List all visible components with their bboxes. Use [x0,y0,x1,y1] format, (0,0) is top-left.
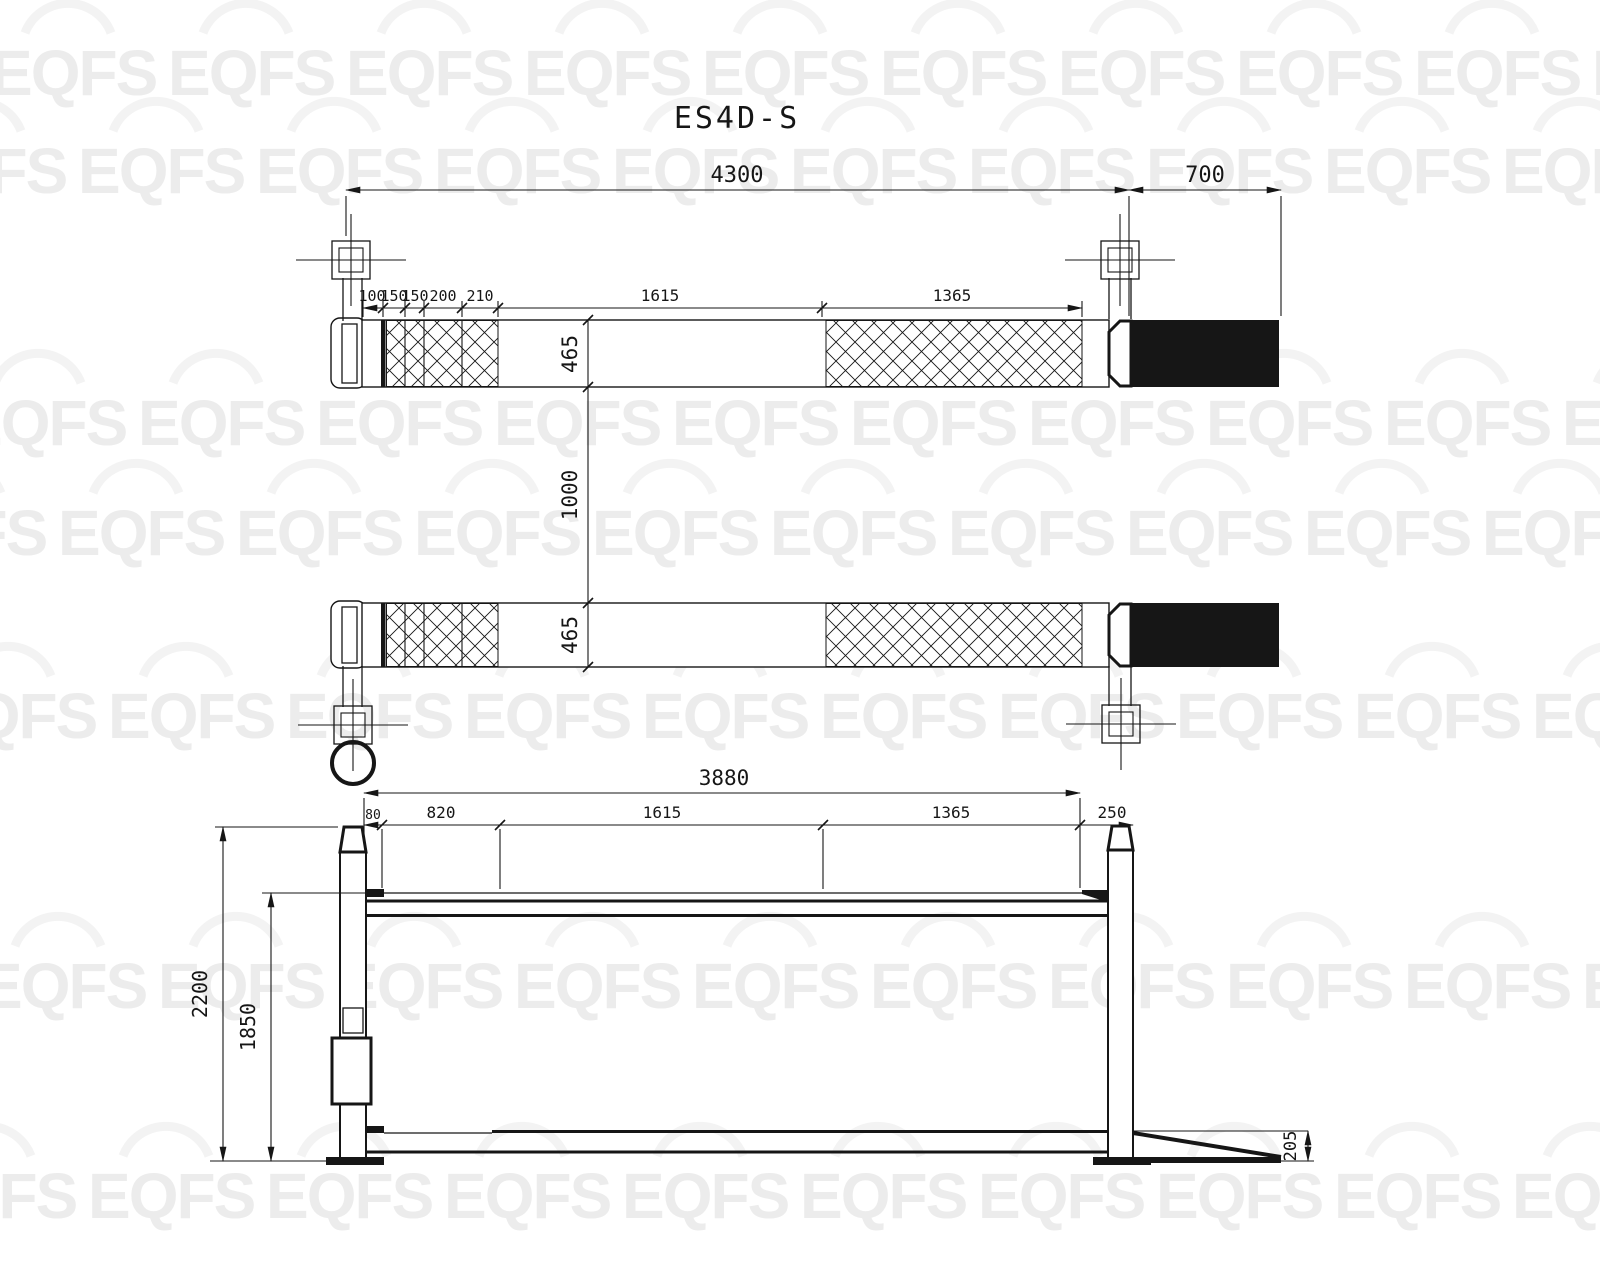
watermark-arc-icon [381,3,467,33]
watermark-arc-icon [559,3,645,33]
watermark-text: EQFS [592,497,759,569]
watermark-arc-icon [0,463,1,493]
watermark-text: EQFS [0,387,127,459]
watermark-text: EQFS [524,37,691,109]
watermark-text: EQFS [642,680,809,752]
watermark-arc-icon [123,1126,209,1156]
watermark-arc-icon [93,463,179,493]
dim-label: 3880 [699,766,750,790]
watermark-arc-icon [1547,1126,1600,1156]
watermark-text: EQFS [880,37,1047,109]
watermark-arc-icon [727,916,813,946]
plan-dim-segments: 100 150 150 200 210 1615 1365 [358,286,1082,317]
watermark-arc-icon [0,646,51,676]
watermark-text: EQFS [1354,680,1521,752]
watermark-text: EQFS [346,37,513,109]
watermark-text: EQFS [0,680,97,752]
lift-drawing-canvas: EQFSEQFSEQFSEQFSEQFSEQFSEQFSEQFSEQFSEQFS… [0,0,1600,1280]
dim-label: 2200 [188,970,212,1018]
watermark-arc-icon [193,916,279,946]
technical-drawing-sheet: EQFSEQFSEQFSEQFSEQFSEQFSEQFSEQFSEQFSEQFS… [0,0,1600,1280]
dim-label: 700 [1185,163,1225,188]
watermark-text: EQFS [1058,37,1225,109]
side-platform-raised [366,889,1108,916]
dim-label: 820 [427,803,456,822]
base-plate [326,1157,384,1165]
watermark-text: EQFS [948,497,1115,569]
watermark-text: EQFS [0,950,147,1022]
watermark-text: EQFS [1404,950,1571,1022]
tread-plate-hatch [387,604,499,667]
drive-on-ramp [1131,320,1279,387]
watermark-text: EQFS [494,387,661,459]
watermark-arc-icon [173,353,259,383]
watermark-text: EQFS [168,37,335,109]
watermark-text: EQFS [672,387,839,459]
watermark-text: EQFS [1532,680,1600,752]
plan-dim-widths: 465 1000 465 [558,315,593,672]
dim-label: 465 [558,616,582,654]
watermark-text: EQFS [88,1160,255,1232]
watermark-text: EQFS [138,387,305,459]
extension-lines [382,829,823,889]
side-dim-runway-length: 3880 [364,766,1080,888]
dim-label: 1000 [558,470,582,521]
watermark-text: EQFS [108,680,275,752]
watermark-text: EQFS [414,497,581,569]
watermark-arc-icon [1261,916,1347,946]
watermark-text: EQFS [78,135,245,207]
dim-label: 1850 [236,1003,260,1051]
watermark-text: EQFS [1304,497,1471,569]
dim-label: 1615 [643,803,682,822]
watermark-text: EQFS [0,135,67,207]
dim-label: 200 [429,287,456,305]
watermark-text: EQFS [1562,387,1600,459]
watermark-text: EQFS [820,680,987,752]
runway-end-cap [331,601,366,668]
watermark-arc-icon [983,463,1069,493]
dim-label: 1615 [641,286,680,305]
watermark-text: EQFS [1592,37,1600,109]
extension-lines [364,798,1080,888]
watermark-arc-icon [1439,916,1525,946]
watermark-text: EQFS [316,387,483,459]
watermark-text: EQFS [1176,680,1343,752]
plan-runway-front [331,318,1279,388]
watermark-text: EQFS [1582,950,1600,1022]
watermark-text: EQFS [1502,135,1600,207]
column-body [340,852,366,1158]
watermark-text: EQFS [266,1160,433,1232]
watermark-arc-icon [271,463,357,493]
watermark-arc-icon [1093,3,1179,33]
drive-on-ramp [1131,603,1279,667]
plan-runway-rear [331,601,1279,668]
tread-plate-hatch [826,321,1082,387]
watermark-text: EQFS [870,950,1037,1022]
watermark-arc-icon [1567,646,1600,676]
watermark-text: EQFS [702,37,869,109]
watermark-arc-icon [805,463,891,493]
ground-line [1151,1157,1281,1163]
watermark-text: EQFS [622,1160,789,1232]
watermark-arc-icon [549,916,635,946]
watermark-text: EQFS [434,135,601,207]
watermark-arc-icon [1161,463,1247,493]
ramp-hinge [1109,321,1131,386]
dim-label: 1365 [933,286,972,305]
watermark-text: EQFS [58,497,225,569]
dim-label: 205 [1281,1131,1301,1162]
watermark-arc-icon [905,916,991,946]
dim-label: 1365 [932,803,971,822]
watermark-text: EQFS [1324,135,1491,207]
dim-label: 80 [365,808,381,823]
column-cap [340,827,366,852]
column-body [1108,850,1133,1158]
base-plate [1093,1157,1151,1165]
watermark-arc-icon [143,646,229,676]
watermark-text: EQFS [800,1160,967,1232]
watermark-text: EQFS [514,950,681,1022]
watermark-arc-icon [449,463,535,493]
deck-end-tab [366,1126,384,1133]
ramp-hinge [1109,604,1131,666]
watermark-text: EQFS [1226,950,1393,1022]
watermark-text: EQFS [978,1160,1145,1232]
watermark-text: EQFS [236,497,403,569]
watermark-text: EQFS [1384,387,1551,459]
watermark-text: EQFS [286,680,453,752]
watermark-text: EQFS [1482,497,1600,569]
watermark-arc-icon [1389,646,1475,676]
watermark-arc-icon [1517,463,1600,493]
watermark-arc-icon [203,3,289,33]
watermark-text: EQFS [1206,387,1373,459]
watermark-text: EQFS [1156,1160,1323,1232]
watermark-arc-icon [1369,1126,1455,1156]
watermark-text: EQFS [0,37,157,109]
crossbeam-edge [381,603,386,667]
watermark-arc-icon [0,1126,31,1156]
tread-plate-hatch [826,604,1082,667]
watermark-text: EQFS [0,1160,77,1232]
dim-label: 465 [558,335,582,373]
watermark-arc-icon [0,353,81,383]
watermark-arc-icon [1339,463,1425,493]
watermark-arc-icon [1271,3,1357,33]
watermark-arc-icon [25,3,111,33]
watermark-text: EQFS [968,135,1135,207]
watermark-text: EQFS [1146,135,1313,207]
watermark-arc-icon [371,916,457,946]
drawing-title: ES4D-S [674,101,800,136]
dim-label: 210 [466,287,493,305]
side-dim-segments: 80 820 1615 1365 250 [364,803,1133,889]
control-box [332,1038,371,1104]
watermark-arc-icon [15,916,101,946]
dim-label: 4300 [711,163,764,188]
watermark-text: EQFS [770,497,937,569]
dim-label: 150 [401,287,428,305]
watermark-text: EQFS [692,950,859,1022]
watermark-text: EQFS [1414,37,1581,109]
watermark-arc-icon [1449,3,1535,33]
runway-end-cap [331,318,366,388]
watermark-text: EQFS [790,135,957,207]
watermark-text: EQFS [1236,37,1403,109]
watermark-arc-icon [1419,353,1505,383]
tread-plate-hatch [387,321,499,387]
watermark-text: EQFS [444,1160,611,1232]
watermark-text: EQFS [1334,1160,1501,1232]
watermark-arc-icon [915,3,1001,33]
column-cap [1108,826,1133,850]
watermark-arc-icon [737,3,823,33]
crossbeam-edge [381,320,386,387]
watermark-text: EQFS [0,497,47,569]
watermark-text: EQFS [1512,1160,1600,1232]
watermark-text: EQFS [1028,387,1195,459]
watermark-text: EQFS [464,680,631,752]
watermark-text: EQFS [1126,497,1293,569]
watermark-text: EQFS [256,135,423,207]
dim-label: 250 [1098,803,1127,822]
watermark-arc-icon [627,463,713,493]
watermark-text: EQFS [850,387,1017,459]
